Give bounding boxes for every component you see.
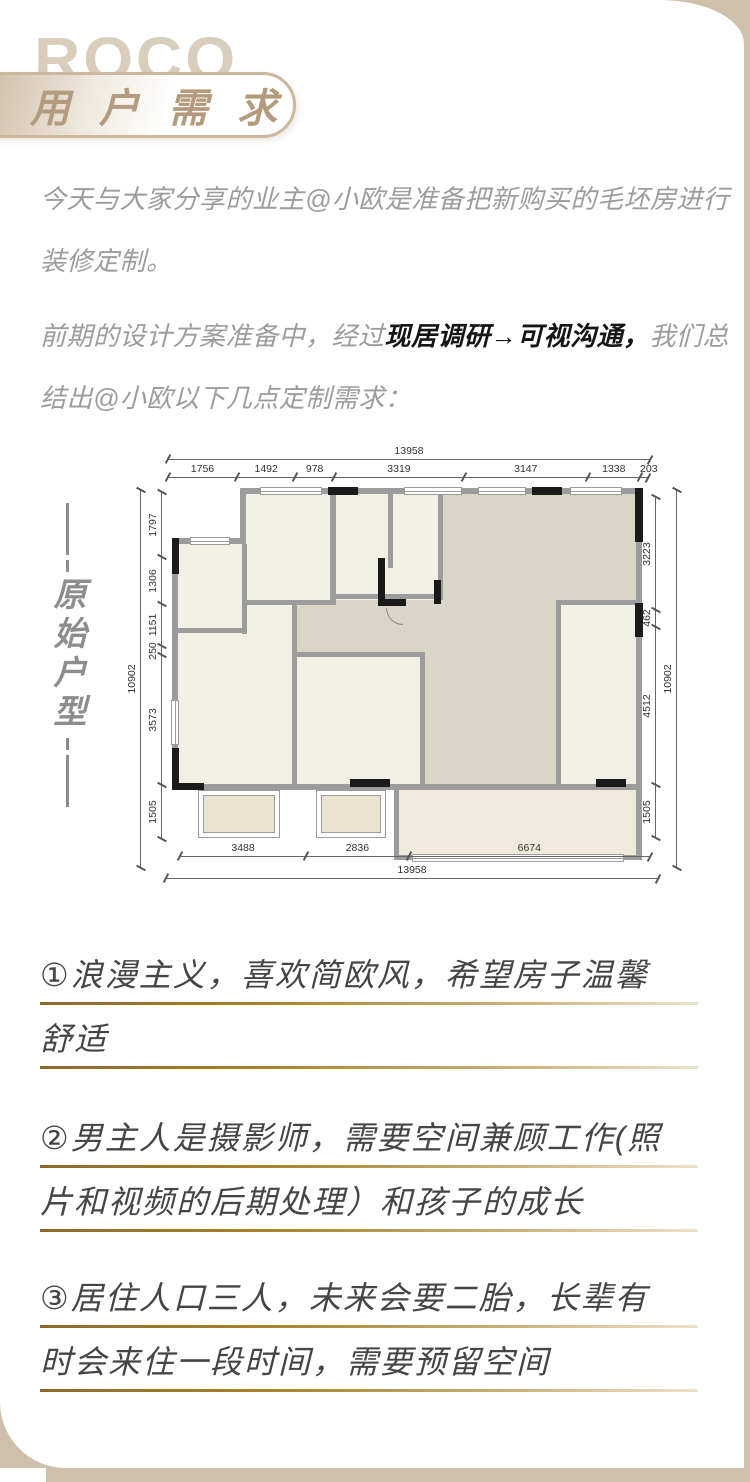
wall-segment: [556, 600, 642, 605]
gold-underline: [40, 1165, 698, 1168]
wall-segment: [292, 652, 425, 657]
dimension-label: 1797: [147, 493, 159, 557]
window: [171, 700, 179, 745]
wall-segment: [388, 488, 393, 568]
rail-line: [66, 738, 69, 750]
dimension-label: 3147: [464, 463, 587, 475]
gold-underline: [40, 1066, 698, 1069]
dimension-label: 13958: [166, 864, 658, 876]
wall-column: [328, 487, 358, 495]
dimension-line-top-total: 13958: [168, 444, 650, 460]
dimension-label: 3488: [180, 842, 306, 854]
floorplan-drawing: [172, 488, 642, 868]
intro-p2-pre: 前期的设计方案准备中，经过: [40, 321, 385, 351]
dimension-label: 3319: [334, 463, 464, 475]
wall-column: [596, 779, 626, 787]
requirement-item-2: ②男主人是摄影师，需要空间兼顾工作(照 片和视频的后期处理）和孩子的成长: [40, 1118, 698, 1232]
wall-column: [532, 487, 562, 495]
balcony: [198, 790, 280, 838]
dimension-label: 1338: [588, 463, 641, 475]
section-header-label: 用 户 需 求: [30, 76, 286, 134]
requirement-item-1: ①浪漫主义，喜欢简欧风，希望房子温馨 舒适: [40, 955, 698, 1069]
dimension-label: 10902: [662, 647, 674, 711]
dimension-label: 1505: [641, 780, 653, 844]
dimension-label: 3223: [641, 522, 653, 586]
requirement-line: ③居住人口三人，未来会要二胎，长辈有: [40, 1278, 698, 1328]
dimension-line-bottom-segments: 3488 2836 6674: [180, 840, 650, 857]
dimension-label: 1505: [147, 780, 159, 844]
requirement-line: 片和视频的后期处理）和孩子的成长: [40, 1182, 698, 1232]
requirement-text: 舒适: [40, 1019, 698, 1059]
wall-column: [350, 779, 390, 787]
dimension-label: 2836: [306, 842, 409, 854]
gold-underline: [40, 1002, 698, 1005]
wall-segment: [330, 488, 336, 604]
rail-line: [66, 503, 69, 555]
dimension-line-right-segments: 3223 462 4512 1505: [655, 497, 656, 838]
requirement-line: 舒适: [40, 1019, 698, 1069]
gold-underline: [40, 1389, 698, 1392]
requirement-text: 片和视频的后期处理）和孩子的成长: [40, 1182, 698, 1222]
requirement-text: 时会来住一段时间，需要预留空间: [40, 1342, 698, 1382]
wall-segment: [242, 600, 336, 605]
rail-line: [66, 560, 69, 572]
wall-segment: [556, 600, 561, 790]
requirement-line: ①浪漫主义，喜欢简欧风，希望房子温馨: [40, 955, 698, 1005]
dimension-line-left-total: 10902: [140, 490, 141, 868]
gold-underline: [40, 1325, 698, 1328]
dimension-label: 10902: [126, 647, 138, 711]
content-card-corner: [0, 1468, 46, 1482]
dimension-label: 13958: [168, 445, 650, 457]
rail-line: [66, 755, 69, 807]
window: [190, 537, 230, 545]
wall-column: [378, 599, 406, 606]
window: [260, 487, 322, 495]
section-header-badge: 用 户 需 求: [0, 72, 296, 138]
window: [478, 487, 526, 495]
wall-segment: [292, 600, 297, 784]
intro-p2-bold-phrase: 现居调研→可视沟通，: [385, 321, 650, 351]
dimension-label: 3573: [147, 688, 159, 752]
wall-column: [434, 580, 441, 604]
floorplan-section-label: 原始户型: [50, 577, 84, 733]
wall-segment: [240, 488, 246, 544]
plan-notch: [172, 488, 244, 538]
dimension-label: 203: [640, 463, 648, 475]
wall-column: [172, 538, 179, 574]
dimension-line-right-total: 10902: [676, 490, 677, 868]
article-page: ROCO 用 户 需 求 今天与大家分享的业主@小欧是准备把新购买的毛坯房进行装…: [0, 0, 750, 1482]
dimension-line-top-segments: 1756 1492 978 3319 3147 1338 203: [168, 462, 648, 478]
wall-segment: [172, 628, 246, 633]
section-label-rail: 原始户型: [50, 503, 84, 807]
intro-paragraph-1: 今天与大家分享的业主@小欧是准备把新购买的毛坯房进行装修定制。: [40, 168, 740, 292]
dimension-label: 1492: [237, 463, 296, 475]
dimension-label: 462: [641, 586, 653, 650]
wall-column: [172, 783, 204, 790]
dimension-label: 1756: [168, 463, 237, 475]
requirement-text: ③居住人口三人，未来会要二胎，长辈有: [40, 1278, 698, 1318]
dimension-label: 6674: [409, 842, 650, 854]
wall-segment: [420, 652, 425, 784]
dimension-line-left-segments: 1797 1306 1151 250 3573 1505: [161, 492, 162, 839]
dimension-label: 978: [295, 463, 333, 475]
hall-fill: [425, 600, 556, 784]
requirement-item-3: ③居住人口三人，未来会要二胎，长辈有 时会来住一段时间，需要预留空间: [40, 1278, 698, 1392]
wall-segment: [242, 544, 247, 634]
dimension-label: 4512: [641, 674, 653, 738]
hall-fill: [294, 600, 425, 652]
dimension-line-bottom-total: 13958: [166, 862, 658, 879]
hall-fill: [442, 494, 636, 600]
intro-paragraph-2: 前期的设计方案准备中，经过现居调研→可视沟通，我们总结出@小欧以下几点定制需求：: [40, 305, 740, 429]
requirement-text: ①浪漫主义，喜欢简欧风，希望房子温馨: [40, 955, 698, 995]
balcony: [316, 790, 386, 838]
requirement-line: 时会来住一段时间，需要预留空间: [40, 1342, 698, 1392]
requirement-text: ②男主人是摄影师，需要空间兼顾工作(照: [40, 1118, 698, 1158]
requirement-line: ②男主人是摄影师，需要空间兼顾工作(照: [40, 1118, 698, 1168]
gold-underline: [40, 1229, 698, 1232]
window: [404, 487, 462, 495]
window: [570, 487, 622, 495]
